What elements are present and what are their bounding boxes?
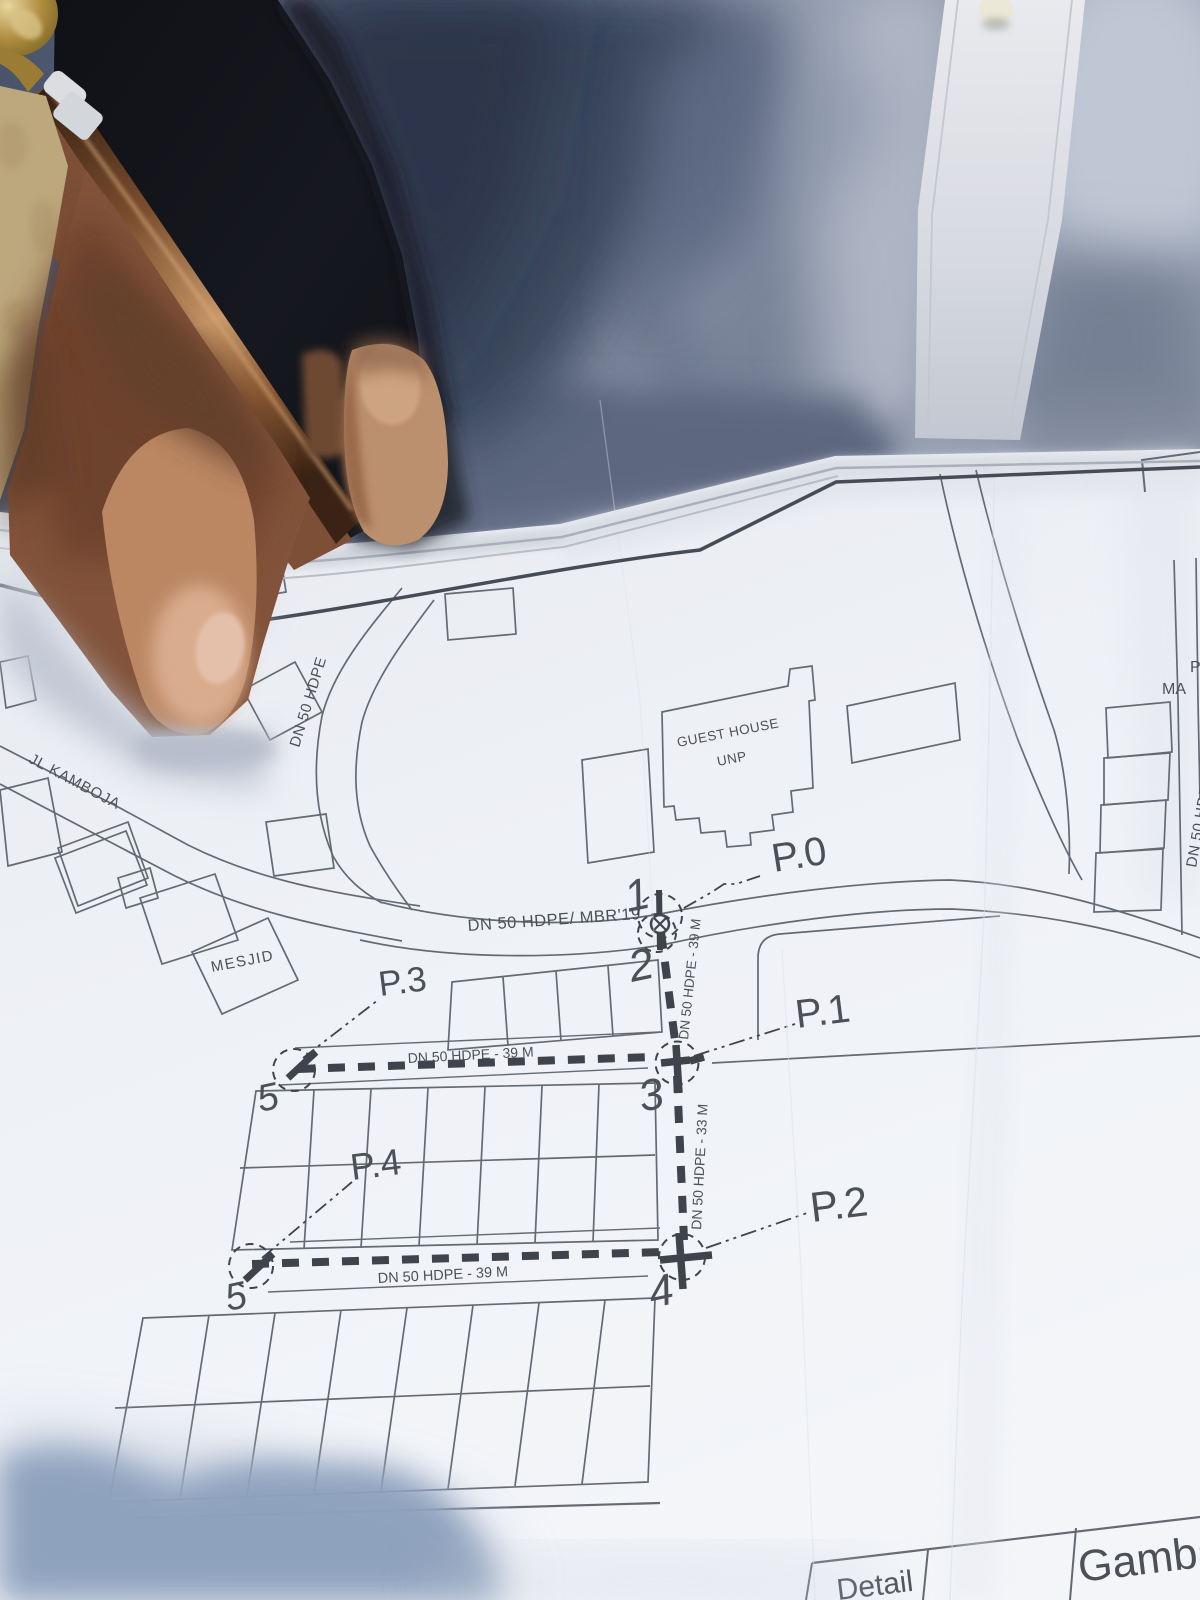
svg-text:P: P	[1190, 659, 1200, 676]
svg-text:P.2: P.2	[807, 1177, 870, 1231]
svg-text:P.4: P.4	[348, 1141, 403, 1188]
svg-text:P.0: P.0	[769, 829, 830, 881]
svg-text:MA: MA	[1162, 681, 1186, 698]
svg-text:P.1: P.1	[793, 987, 853, 1037]
svg-text:P.3: P.3	[376, 959, 428, 1004]
